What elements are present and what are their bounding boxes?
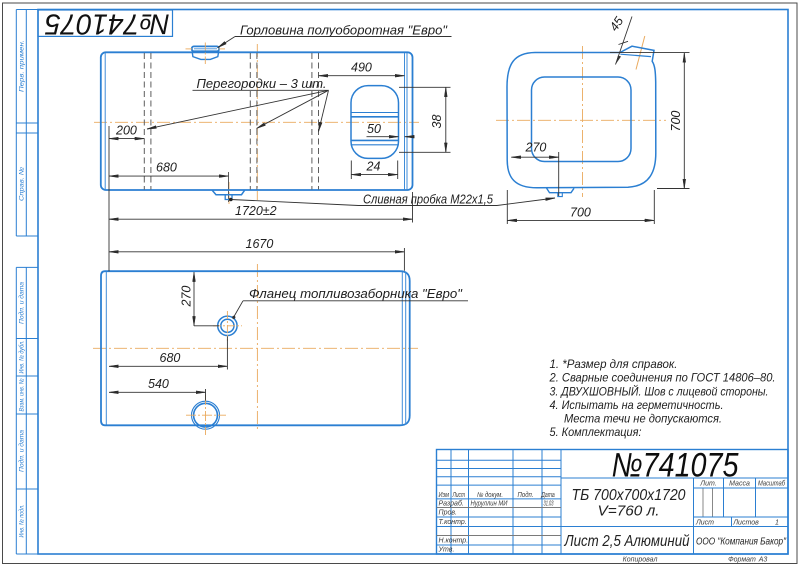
svg-text:680: 680 <box>156 161 177 175</box>
svg-text:V=760 л.: V=760 л. <box>598 504 660 520</box>
svg-text:1670: 1670 <box>246 237 274 251</box>
svg-text:Листов: Листов <box>732 520 759 527</box>
svg-text:Дата: Дата <box>541 492 555 499</box>
svg-text:Копировал: Копировал <box>623 557 658 564</box>
svg-text:ТБ 700х700х1720: ТБ 700х700х1720 <box>572 487 686 504</box>
svg-text:ООО "Компания Бакор": ООО "Компания Бакор" <box>696 536 787 548</box>
svg-text:540: 540 <box>148 377 169 391</box>
svg-text:270: 270 <box>525 141 547 155</box>
svg-text:5. Комплектация:: 5. Комплектация: <box>550 425 642 439</box>
svg-text:Фланец топливозаборника "Евро": Фланец топливозаборника "Евро" <box>249 286 463 301</box>
svg-text:2. Сварные соединения по ГОСТ: 2. Сварные соединения по ГОСТ 14806–80. <box>549 371 776 385</box>
svg-text:Лист: Лист <box>452 492 465 499</box>
svg-text:24: 24 <box>366 160 381 174</box>
svg-text:Изм: Изм <box>439 492 450 499</box>
svg-text:Пров.: Пров. <box>439 510 458 517</box>
svg-text:38: 38 <box>430 115 444 129</box>
svg-text:Разраб.: Разраб. <box>439 500 464 508</box>
svg-text:Подп. и дата: Подп. и дата <box>18 430 26 472</box>
svg-text:Формат: Формат <box>728 557 756 564</box>
svg-text:4. Испытать на герметичность.: 4. Испытать на герметичность. <box>550 398 724 412</box>
svg-text:Инв. № дубл.: Инв. № дубл. <box>18 340 26 373</box>
svg-text:Масса: Масса <box>729 481 750 488</box>
svg-text:Лист 2,5 Алюминий: Лист 2,5 Алюминий <box>564 533 690 550</box>
svg-text:Нуруллин МИ: Нуруллин МИ <box>471 501 509 508</box>
svg-text:Подп. и дата: Подп. и дата <box>18 282 26 324</box>
svg-text:№741075: №741075 <box>45 8 170 40</box>
svg-text:Горловина полуоборотная "Евро": Горловина полуоборотная "Евро" <box>240 23 448 38</box>
svg-text:Лист: Лист <box>695 520 714 527</box>
svg-text:700: 700 <box>570 205 591 219</box>
svg-text:Взам. инв. №: Взам. инв. № <box>19 379 26 412</box>
svg-text:Утв.: Утв. <box>438 547 455 554</box>
svg-text:Н.контр.: Н.контр. <box>439 538 469 545</box>
svg-text:Перегородки – 3 шт.: Перегородки – 3 шт. <box>197 76 327 91</box>
svg-text:Подп.: Подп. <box>518 491 534 499</box>
svg-text:Инв. № подл.: Инв. № подл. <box>18 504 26 537</box>
svg-text:Масштаб: Масштаб <box>758 480 786 488</box>
svg-text:700: 700 <box>669 111 683 132</box>
svg-text:31.03: 31.03 <box>544 501 554 508</box>
svg-text:1: 1 <box>775 520 779 527</box>
svg-text:№ докум.: № докум. <box>477 491 503 499</box>
svg-text:Перв. примен.: Перв. примен. <box>19 40 26 92</box>
svg-text:№741075: №741075 <box>612 447 739 485</box>
svg-text:680: 680 <box>160 351 181 365</box>
svg-text:Справ. №: Справ. № <box>19 167 26 201</box>
svg-text:270: 270 <box>180 286 194 308</box>
svg-text:Лит.: Лит. <box>699 481 716 488</box>
svg-text:Сливная пробка М22х1,5: Сливная пробка М22х1,5 <box>363 192 494 207</box>
svg-text:Места течи не допускаются.: Места течи не допускаются. <box>564 411 722 425</box>
svg-text:1720±2: 1720±2 <box>235 204 277 218</box>
svg-text:50: 50 <box>367 122 381 136</box>
svg-text:1. *Размер для справок.: 1. *Размер для справок. <box>550 357 678 371</box>
svg-text:Т.контр.: Т.контр. <box>439 519 467 526</box>
svg-text:490: 490 <box>351 60 372 74</box>
svg-text:А3: А3 <box>758 557 768 564</box>
svg-text:3. ДВУХШОВНЫЙ. Шов с лицевой с: 3. ДВУХШОВНЫЙ. Шов с лицевой стороны. <box>550 382 769 398</box>
svg-text:200: 200 <box>115 124 137 138</box>
